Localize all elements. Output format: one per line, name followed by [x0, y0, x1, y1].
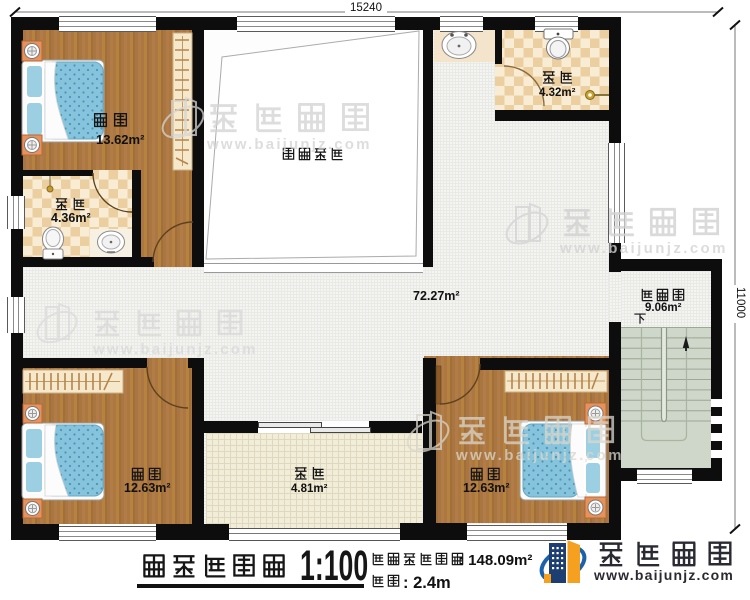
svg-text:www.baijunjz.com: www.baijunjz.com — [559, 240, 728, 257]
svg-text:www.baijunjz.com: www.baijunjz.com — [92, 341, 258, 358]
svg-text:www.baijunjz.com: www.baijunjz.com — [206, 136, 372, 153]
svg-text:www.baijunjz.com: www.baijunjz.com — [455, 447, 624, 464]
